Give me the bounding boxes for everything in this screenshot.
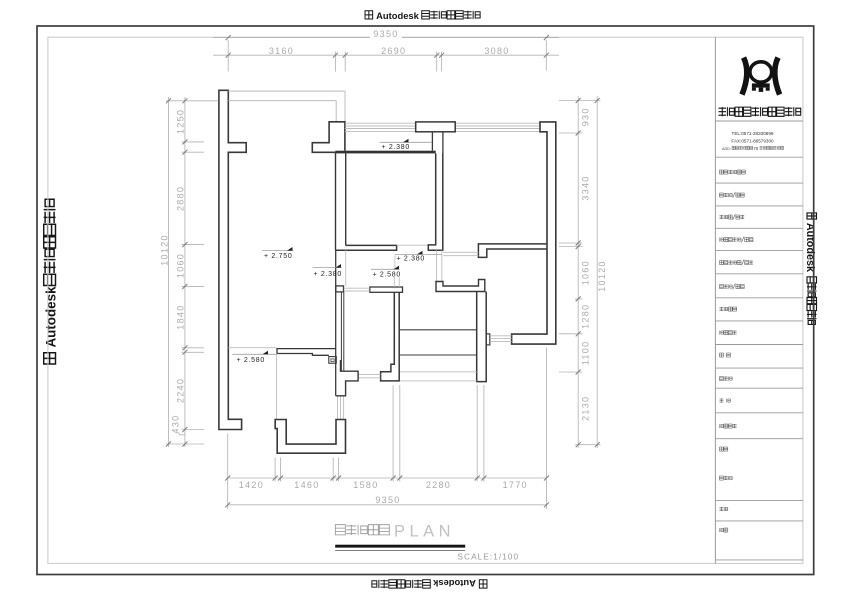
svg-text:2130: 2130 xyxy=(581,396,591,421)
svg-text:10120: 10120 xyxy=(597,260,607,292)
svg-text:TEL:0571-28330899: TEL:0571-28330899 xyxy=(732,131,774,136)
svg-text:1280: 1280 xyxy=(581,304,591,329)
svg-text:1460: 1460 xyxy=(294,480,319,490)
svg-text:78: 78 xyxy=(753,146,758,151)
svg-text:430: 430 xyxy=(171,415,181,434)
svg-text:+ 2.580: + 2.580 xyxy=(237,357,265,364)
svg-text:9350: 9350 xyxy=(375,495,400,505)
svg-text:+ 2.580: + 2.580 xyxy=(373,271,401,278)
svg-text:3080: 3080 xyxy=(484,46,509,56)
svg-text:Autodesk: Autodesk xyxy=(44,286,59,348)
svg-text:2880: 2880 xyxy=(176,186,186,211)
svg-text:+ 2.750: + 2.750 xyxy=(264,253,292,260)
svg-text:2280: 2280 xyxy=(426,480,451,490)
svg-text:ADD:: ADD: xyxy=(722,147,731,151)
svg-text:SCALE:1/100: SCALE:1/100 xyxy=(458,553,520,562)
svg-text:Autodesk: Autodesk xyxy=(432,578,476,589)
svg-text:+ 2.380: + 2.380 xyxy=(314,271,342,278)
svg-text:+ 2.380: + 2.380 xyxy=(382,144,410,151)
svg-text:9350: 9350 xyxy=(373,29,398,39)
svg-text:FAX:0571-86579300: FAX:0571-86579300 xyxy=(731,138,774,143)
svg-text:1100: 1100 xyxy=(581,341,591,366)
svg-text:2240: 2240 xyxy=(176,378,186,403)
svg-text:1580: 1580 xyxy=(353,480,378,490)
svg-text:Autodesk: Autodesk xyxy=(376,10,420,21)
svg-text:2690: 2690 xyxy=(381,46,406,56)
svg-text:PLAN: PLAN xyxy=(394,523,455,541)
svg-text:3160: 3160 xyxy=(269,46,294,56)
svg-text:1420: 1420 xyxy=(239,480,264,490)
svg-text:1250: 1250 xyxy=(176,109,186,134)
svg-text:1060: 1060 xyxy=(176,253,186,278)
svg-text:3340: 3340 xyxy=(581,175,591,200)
svg-text:1060: 1060 xyxy=(581,260,591,285)
svg-text:1770: 1770 xyxy=(503,480,528,490)
svg-text:1840: 1840 xyxy=(176,304,186,329)
svg-text:10120: 10120 xyxy=(159,234,169,266)
svg-text:930: 930 xyxy=(581,107,591,126)
svg-text:+ 2.380: + 2.380 xyxy=(397,256,425,263)
